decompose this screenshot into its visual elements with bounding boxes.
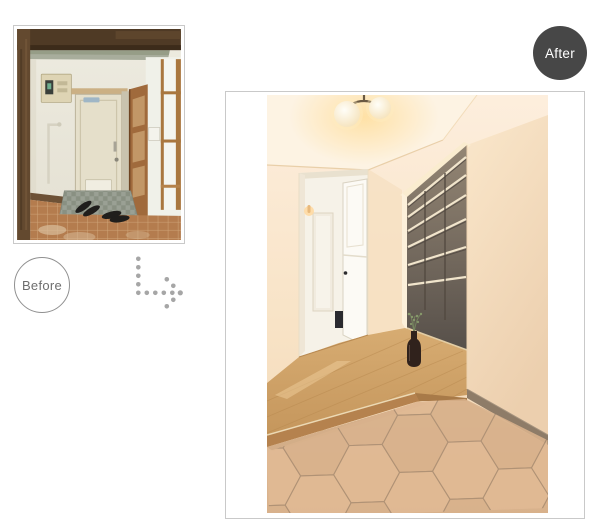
before-badge-label: Before xyxy=(22,278,62,293)
after-photo xyxy=(267,95,548,513)
white-open-door xyxy=(343,179,367,347)
before-photo xyxy=(17,29,181,240)
entry-tile-platform xyxy=(59,191,137,217)
floor-bin xyxy=(335,311,343,328)
before-photo-card xyxy=(13,25,185,244)
dotted-arrow-icon xyxy=(133,252,187,314)
hallway-opening xyxy=(299,169,368,357)
after-photo-card xyxy=(225,91,585,519)
wood-post xyxy=(17,29,30,240)
glass-window-frame xyxy=(161,59,181,210)
after-badge-label: After xyxy=(545,46,575,61)
right-wall xyxy=(467,115,548,440)
before-badge: Before xyxy=(14,257,70,313)
doorbell-box xyxy=(149,127,160,140)
electrical-panel xyxy=(41,74,71,102)
after-badge: After xyxy=(533,26,587,80)
